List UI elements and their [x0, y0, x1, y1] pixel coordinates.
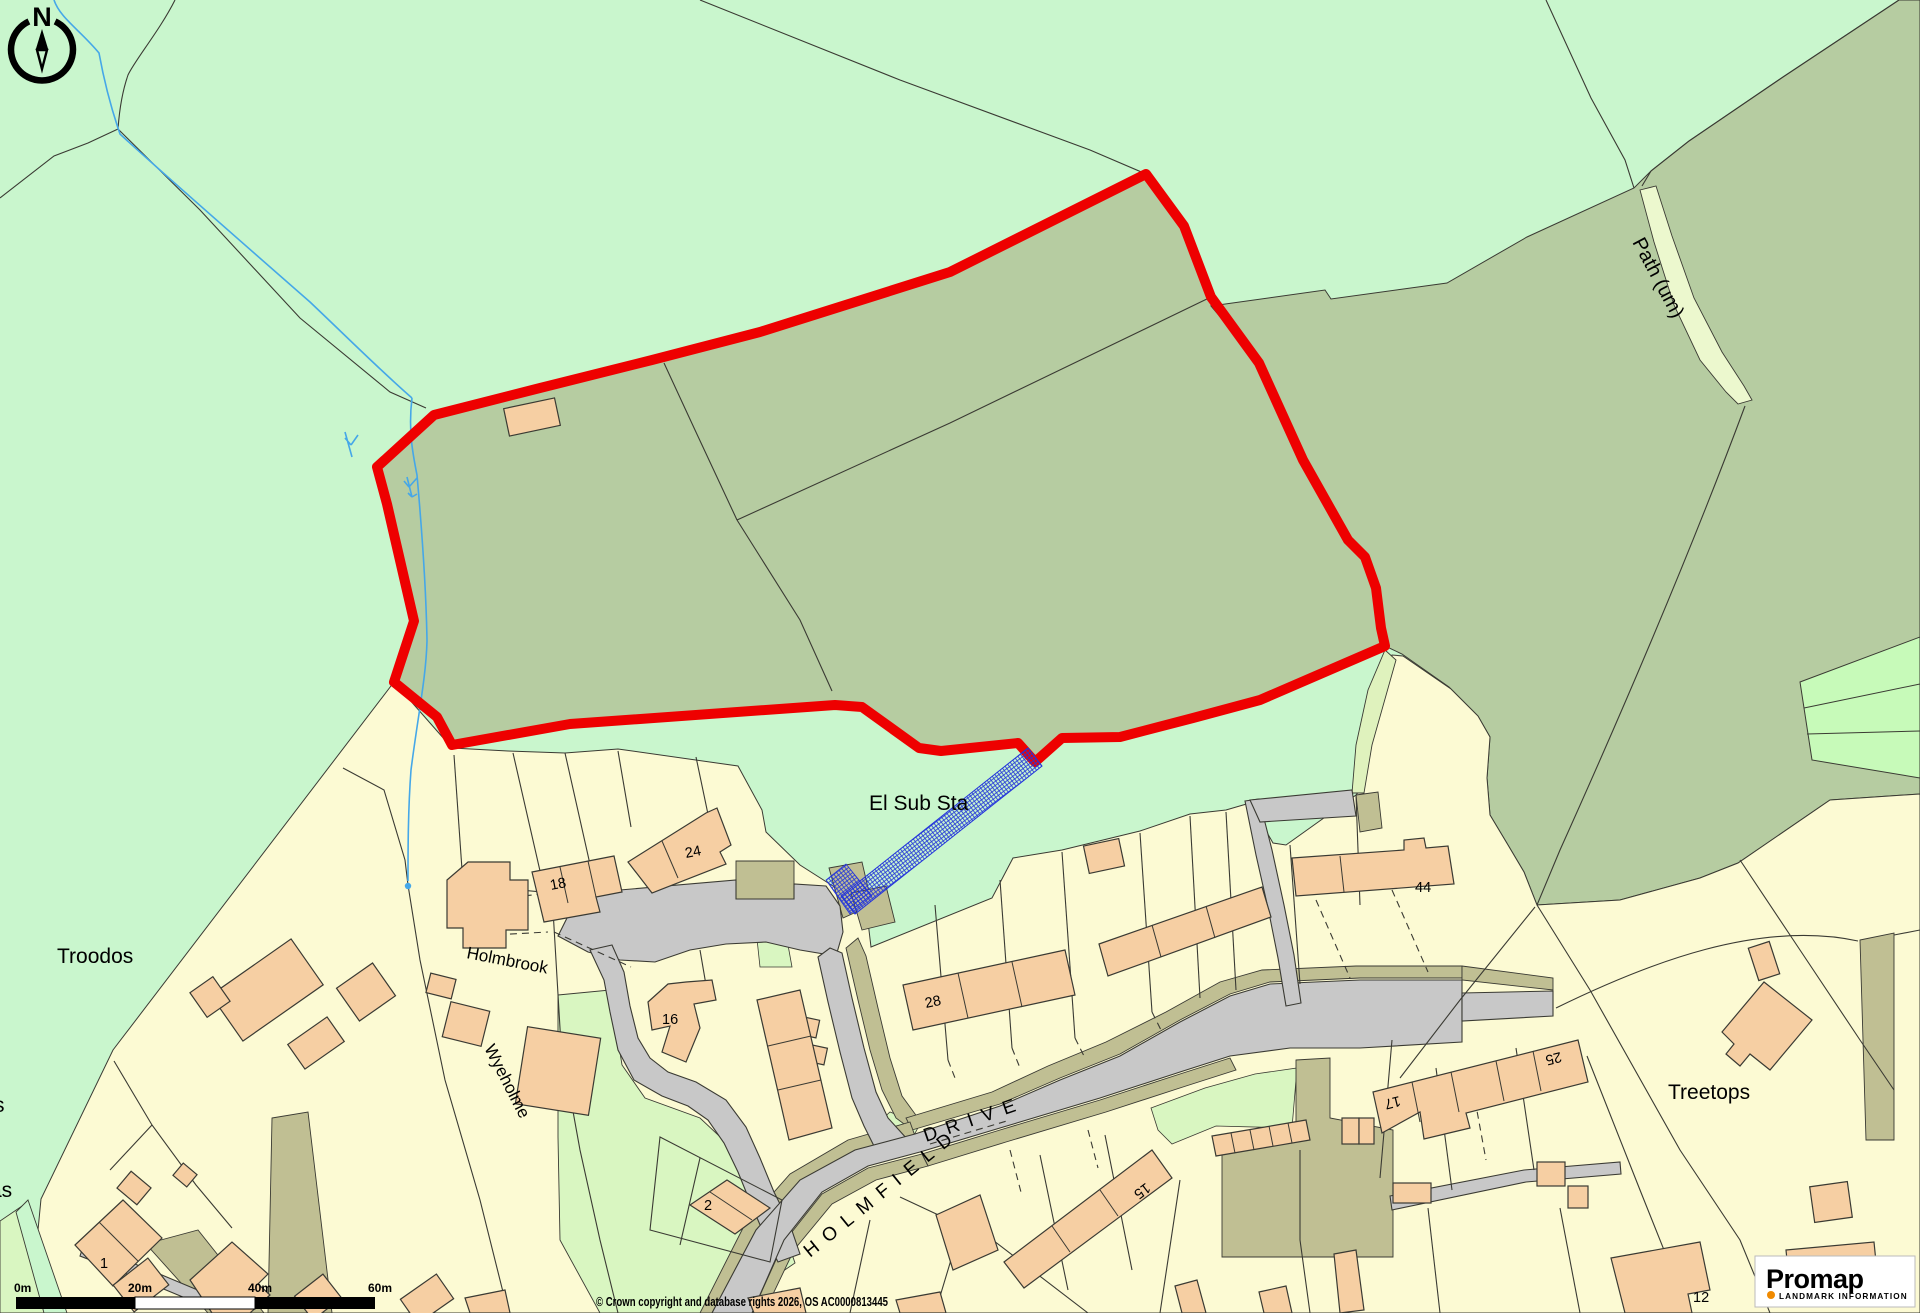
svg-text:28: 28 [924, 993, 943, 1012]
svg-text:20m: 20m [128, 1281, 152, 1295]
svg-text:© Crown copyright and database: © Crown copyright and database rights 20… [596, 1295, 888, 1309]
svg-text:El Sub Sta: El Sub Sta [869, 792, 969, 815]
svg-text:s: s [0, 1094, 5, 1117]
svg-text:2: 2 [704, 1198, 712, 1214]
svg-text:Treetops: Treetops [1668, 1081, 1750, 1104]
svg-text:44: 44 [1415, 880, 1431, 896]
svg-text:Promap: Promap [1766, 1264, 1864, 1294]
svg-text:Troodos: Troodos [57, 945, 133, 968]
svg-text:40m: 40m [248, 1281, 272, 1295]
svg-text:16: 16 [662, 1012, 678, 1028]
svg-text:N: N [32, 2, 52, 32]
svg-text:LANDMARK INFORMATION: LANDMARK INFORMATION [1779, 1292, 1908, 1301]
svg-text:60m: 60m [368, 1281, 392, 1295]
svg-text:12: 12 [1693, 1290, 1709, 1306]
svg-text:1: 1 [100, 1256, 108, 1272]
svg-text:18: 18 [549, 875, 568, 894]
svg-text:24: 24 [684, 843, 703, 862]
svg-text:as: as [0, 1179, 12, 1202]
svg-text:0m: 0m [14, 1281, 31, 1295]
